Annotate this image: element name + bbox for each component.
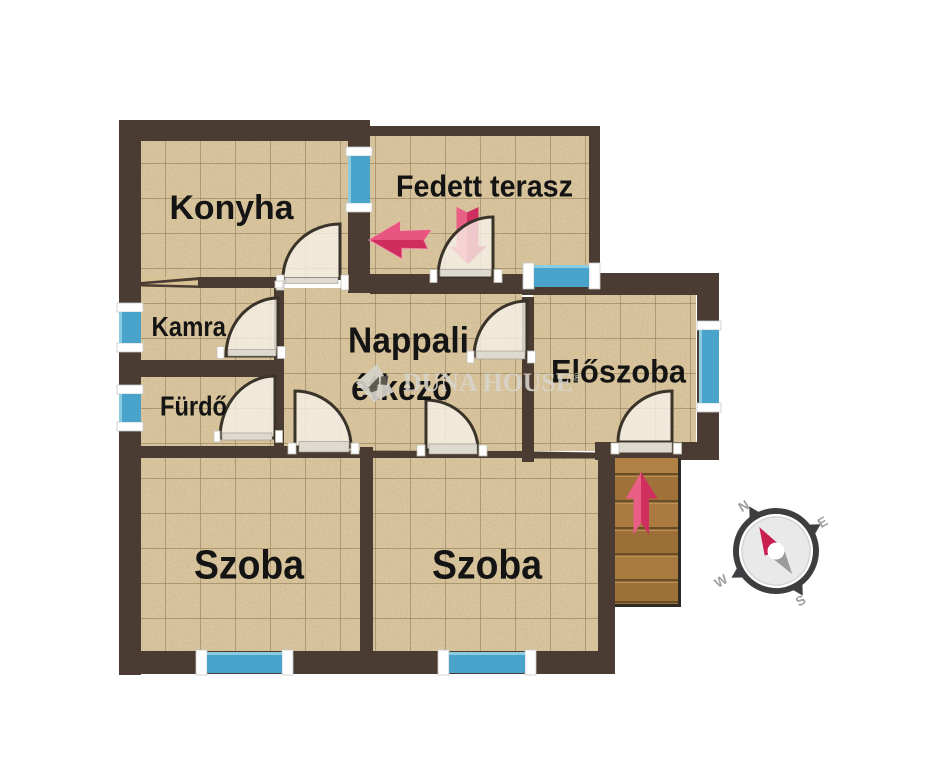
- svg-text:Szoba: Szoba: [194, 542, 305, 588]
- svg-text:Kamra: Kamra: [152, 311, 227, 342]
- svg-text:Konyha: Konyha: [170, 189, 295, 227]
- svg-text:Fürdő: Fürdő: [160, 391, 227, 422]
- svg-text:Fedett terasz: Fedett terasz: [396, 169, 573, 204]
- svg-text:Szoba: Szoba: [432, 542, 543, 588]
- svg-text:®: ®: [573, 372, 581, 384]
- svg-text:Nappali: Nappali: [348, 320, 469, 361]
- svg-text:DUNA HOUSE: DUNA HOUSE: [403, 368, 573, 397]
